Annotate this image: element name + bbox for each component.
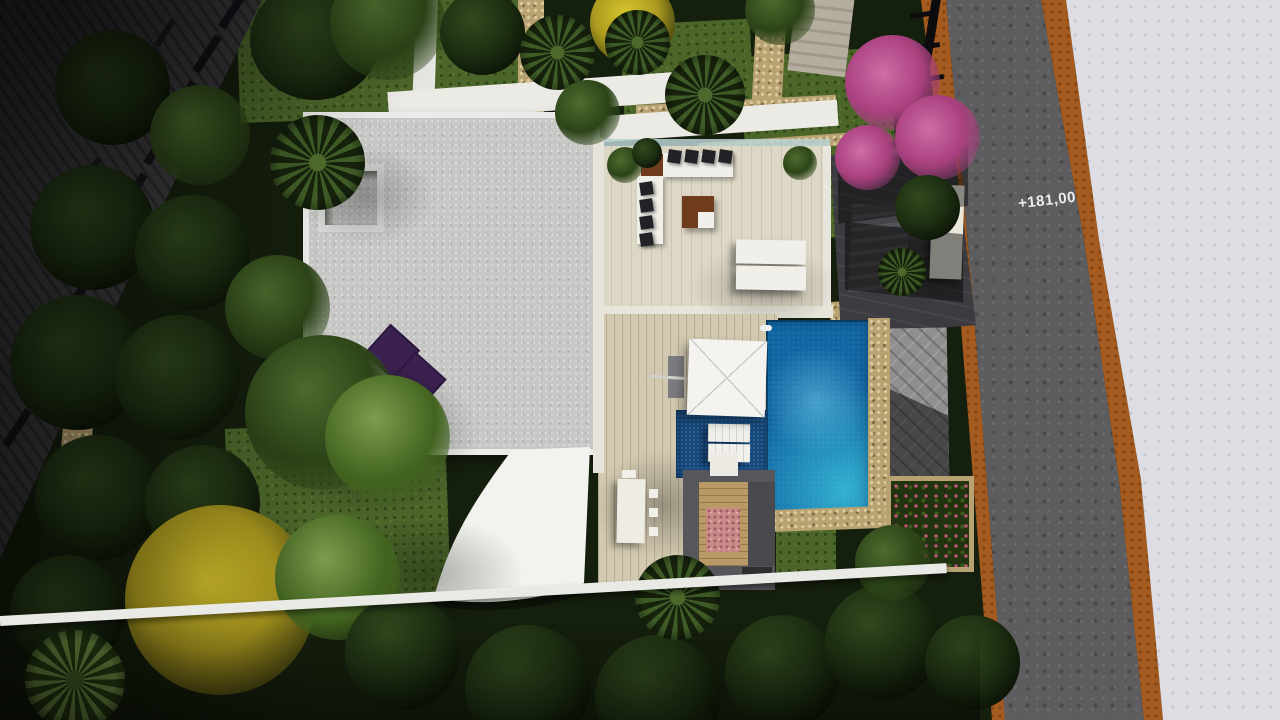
bougainvillea [895,95,980,180]
tree [825,585,940,700]
palm-tree [520,15,595,90]
sofa-cushion [684,149,699,164]
dining-chair [622,470,636,478]
coffee-table-tray [698,212,714,228]
sofa-cushion [701,149,716,164]
tree [325,375,450,500]
palm-tree [635,555,720,640]
tree [925,615,1020,710]
palm-tree [665,55,745,135]
lounge-bench-white [710,452,738,476]
tree [35,435,160,560]
fan-palm [25,630,125,720]
sofa-cushion [639,232,654,247]
terrace-sun-lounger [736,265,806,290]
sofa-cushion [667,149,682,164]
lounge-rug [706,508,740,552]
tree [115,315,240,440]
tree [725,615,840,720]
pool-ladder [760,325,772,331]
driveway [883,327,950,480]
palm-tree [270,115,365,210]
tree [345,595,460,710]
driveway-shadow [883,327,950,480]
square-parasol [687,339,768,418]
terrace-plant [632,138,662,168]
deck-west-parapet [593,138,604,473]
tree [595,635,720,720]
terrace-plant [783,146,817,180]
tree [895,175,960,240]
sofa-cushion [639,198,654,213]
bougainvillea [835,125,900,190]
tree [855,525,930,600]
terrace-sun-lounger [736,239,806,264]
dining-chair [649,508,658,517]
sofa-cushion [639,181,654,196]
dining-table [616,479,645,543]
dining-chair [649,489,658,498]
tree [555,80,620,145]
swimming-pool [766,320,878,520]
sofa-cushion [639,215,654,230]
aerial-villa-render: +181,00 [0,0,1280,720]
dining-chair [649,527,658,536]
tree [30,165,155,290]
tree [465,625,590,720]
water-lounger [708,424,750,443]
pool-stone-border-south [764,506,891,532]
palm-tree [605,10,670,75]
palm-tree [878,248,926,296]
tree [150,85,250,185]
lounge-counter [748,482,775,566]
sofa-cushion [718,149,733,164]
